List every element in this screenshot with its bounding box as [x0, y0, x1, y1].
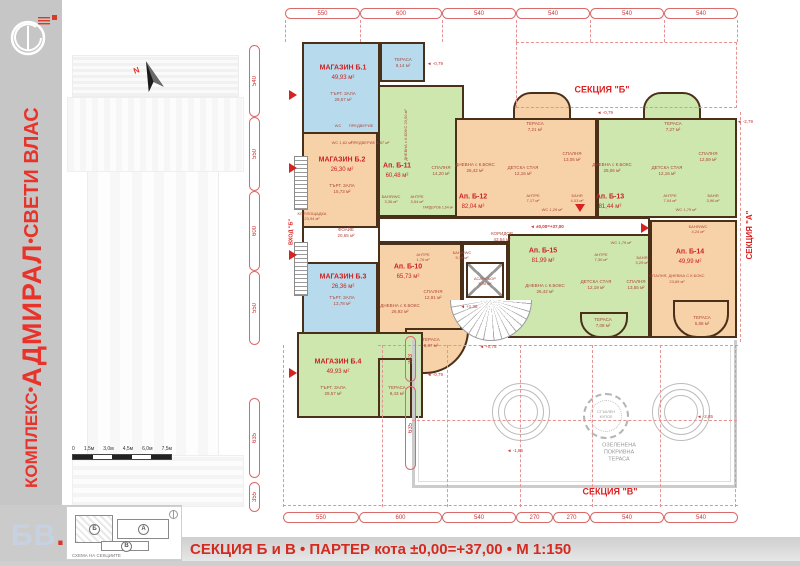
dashed-gridline	[382, 345, 383, 507]
dimension-label: 270	[553, 512, 590, 523]
plan-label: 5,08 м²	[479, 282, 492, 286]
plan-label: ТЪРГ. ЗАЛА	[329, 184, 354, 189]
level-mark: ◄ -2,85	[697, 415, 713, 420]
plan-label: ТЕРАСА	[394, 58, 412, 63]
plan-label: 13,55 м²	[627, 286, 644, 291]
plan-label: 20,65 м²	[337, 234, 354, 239]
level-mark: ◄ -2,79	[737, 120, 753, 125]
dimension-label: 600	[360, 8, 442, 19]
plan-label: 25,06 м²	[603, 169, 620, 174]
plan-label: 4,24 м²	[692, 230, 705, 234]
entrance-marker-icon	[289, 250, 297, 260]
dimension-label: 355	[249, 482, 260, 512]
entrance-marker-icon	[641, 223, 649, 233]
plan-label: 12,91 м²	[424, 296, 441, 301]
dimension-label: 540	[590, 8, 664, 19]
plan-label: 12,16 м²	[658, 172, 675, 177]
dashed-gridline	[447, 345, 448, 507]
key-plan-caption: СХЕМА НА СЕКЦИИТЕ	[72, 553, 121, 558]
plan-label: 7,30 м²	[595, 258, 608, 262]
brand-complex: КОМПЛЕКС	[22, 393, 41, 489]
plan-label: ДЕТСКА СТАЯ	[508, 166, 539, 171]
plan-label: КОРИДОР	[491, 232, 513, 237]
sheet-code-dot: .	[56, 519, 65, 552]
dashed-gridline	[735, 345, 736, 507]
plan-label: ДНЕВНА с К.БОКС	[525, 284, 564, 289]
dashed-gridline	[660, 345, 661, 507]
dashed-gridline	[664, 20, 665, 42]
plan-label: МАГАЗИН Б.4	[315, 359, 362, 366]
plan-label: ДЕТСКА СТАЯ	[652, 166, 683, 171]
scale-label: 4,5м	[123, 446, 133, 452]
plan-label: 26,92 м²	[391, 310, 408, 315]
plan-label: WC 1,79 м²	[611, 241, 632, 245]
plan-label: СЕКЦИЯ "А"	[746, 211, 754, 260]
dimension-label: 550	[285, 8, 360, 19]
plan-label: 3,29 м²	[636, 261, 649, 265]
dimension-label: 540	[442, 512, 516, 523]
plan-label: 49,93 м²	[327, 369, 350, 375]
plan-label: СЕКЦИЯ "Б"	[574, 86, 629, 95]
dashed-gridline	[592, 345, 593, 507]
brand-vertical-text: КОМПЛЕКС•АДМИРАЛ•СВЕТИ ВЛАС	[15, 62, 49, 534]
plan-label: ПРЕДВЕРИЕ 1,87 м²	[351, 141, 390, 145]
plan-label: 8,87 м²	[424, 344, 439, 349]
plan-label: 15,73 м²	[333, 190, 350, 195]
scale-bar-segments	[72, 454, 172, 460]
key-plan-label-v: В	[121, 541, 132, 552]
plan-label: ВХОД "Б"	[289, 219, 295, 245]
plan-label: МАГАЗИН Б.1	[320, 65, 367, 72]
plan-label: СПАЛНЯ	[562, 152, 581, 157]
plan-label: 12,59 м²	[699, 158, 716, 163]
entrance-marker-icon	[575, 204, 585, 212]
plan-label: ДНЕВНА с К.БОКС 23,90 м²	[404, 109, 408, 160]
entrance-marker-icon	[289, 90, 297, 100]
plan-label: ПРЕДВЕРИЕ	[349, 124, 373, 128]
plan-label: ТЕРАСА	[608, 457, 629, 463]
plan-label: ТЪРГ. ЗАЛА	[330, 92, 355, 97]
plan-label: Ап. Б-10	[394, 264, 422, 271]
plan-label: МАГАЗИН Б.3	[320, 274, 367, 281]
plan-label: 5,88 м²	[695, 322, 710, 327]
plan-label: 3,54 м²	[411, 200, 424, 204]
dashed-gridline	[516, 20, 517, 42]
plan-label: 43,54 м²	[493, 238, 510, 243]
dashed-gridline	[283, 345, 284, 507]
plan-label: ТЕРАСА	[693, 316, 711, 321]
brand-city: СВЕТИ ВЛАС	[21, 108, 43, 239]
dimension-label: 635	[405, 386, 416, 470]
scale-label: 6,0м	[142, 446, 152, 452]
title-bar: СЕКЦИЯ Б и В • ПАРТЕР кота ±0,00=+37,00 …	[182, 537, 800, 561]
plan-label: 7,17 м²	[527, 199, 540, 203]
plan-label: ДЕТСКА СТАЯ	[581, 280, 612, 285]
plan-label: Ап. Б-14	[676, 249, 704, 256]
plan-label: 49,93 м²	[332, 75, 355, 81]
plan-label: 7,04 м²	[664, 199, 677, 203]
dashed-gridline	[520, 345, 521, 507]
key-plan-label-a: А	[138, 524, 149, 535]
plan-label: СПАЛНЯ	[626, 280, 645, 285]
level-mark: ◄ +0,75	[479, 345, 496, 350]
plan-label: 49,99 м²	[679, 259, 702, 265]
plan-label: 26,36 м²	[332, 284, 355, 290]
dimension-label: 600	[359, 512, 442, 523]
plan-label: 65,73 м²	[397, 274, 420, 280]
plan-label: ФОАЙЕ	[338, 228, 354, 233]
dashed-gridline	[412, 420, 737, 421]
dimension-label: 550	[283, 512, 359, 523]
plan-label: СЕКЦИЯ "В"	[582, 488, 637, 497]
plan-label: 81,99 м²	[532, 258, 555, 264]
dimension-label: 540	[664, 512, 738, 523]
sketch-column-shaft	[87, 172, 219, 455]
plan-label: 26,42 м²	[536, 290, 553, 295]
plan-label: 3,96 м²	[707, 199, 720, 203]
plan-label: ТЕРАСА	[422, 338, 440, 343]
plan-label: СПАЛНЯ	[423, 290, 442, 295]
plan-label: 26,42 м²	[466, 169, 483, 174]
north-label: N	[132, 65, 141, 76]
scale-label: 3,0м	[103, 446, 113, 452]
plan-label: WC 1,29 м²	[542, 208, 563, 212]
plan-label: 13,05 м²	[563, 158, 580, 163]
plan-label: 1,76 м²	[417, 258, 430, 262]
plan-label: СПАЛНЯ, ДНЕВНА С К.БОКС	[649, 274, 704, 278]
plan-label: 9,14 м²	[396, 64, 411, 69]
dashed-gridline	[360, 20, 361, 42]
dashed-gridline	[740, 112, 741, 342]
plan-label: МАГАЗИН Б.2	[319, 157, 366, 164]
dashed-zone	[516, 42, 737, 108]
plan-label: 7,21 м²	[528, 128, 543, 133]
plan-label: 7,27 м²	[666, 128, 681, 133]
dashed-gridline	[285, 20, 286, 42]
terrace-ring	[664, 395, 698, 429]
plan-label: ТЪРГ. ЗАЛА	[320, 386, 345, 391]
plan-label: Ап. Б-15	[529, 248, 557, 255]
dashed-gridline	[737, 20, 738, 42]
plan-label: ТЕРАСА	[664, 122, 682, 127]
plan-label: 14,20 м²	[432, 172, 449, 177]
plan-label: WC 1,62 м²	[332, 141, 353, 145]
company-logo-icon	[8, 12, 60, 65]
plan-label: 23,69 м²	[669, 280, 684, 284]
dimension-label: 540	[590, 512, 664, 523]
plan-label: WC	[335, 124, 342, 128]
dimension-label: 540	[516, 8, 590, 19]
brand-separator: •	[23, 238, 40, 244]
plan-label: 7,08 м²	[596, 324, 611, 329]
plan-label: ДНЕВНА с К.БОКС	[592, 163, 631, 168]
plan: 5506005405405405405506005402702705405405…	[245, 0, 800, 537]
sketch-frieze	[67, 97, 244, 172]
entrance-marker-icon	[289, 368, 297, 378]
brand-name: АДМИРАЛ	[17, 244, 47, 387]
plan-label: 29,57 м²	[324, 392, 341, 397]
key-plan-compass-icon	[169, 510, 178, 519]
dimension-label: 363	[405, 336, 416, 382]
dimension-label: 550	[249, 271, 260, 345]
sheet-title: СЕКЦИЯ Б и В • ПАРТЕР кота ±0,00=+37,00 …	[182, 541, 571, 558]
brand-separator: •	[23, 387, 40, 393]
plan-label: 5,19 м²	[456, 256, 469, 260]
plan-label: Ап. Б-11	[383, 163, 411, 170]
drawing-sheet: N 0 1,5м 3,0м 4,5м 6,0м 7,5м 55060054054…	[0, 0, 800, 566]
plan-label: 3,36 м²	[385, 200, 398, 204]
level-mark: ◄ -1,85	[507, 449, 523, 454]
plan-label: Ап. Б-12	[459, 194, 487, 201]
scale-label: 7,5м	[162, 446, 172, 452]
plan-label: Ап. Б-13	[596, 194, 624, 201]
plan-label: 9,43 м²	[390, 392, 405, 397]
plan-label: 81,44 м²	[599, 204, 622, 210]
plan-label: ГАРДЕРОБ 1,64 м²	[423, 206, 453, 210]
scale-label: 1,5м	[84, 446, 94, 452]
dimension-label: 540	[249, 45, 260, 117]
plan-label: ПОКРИВНА	[604, 450, 634, 456]
terrace-ring	[504, 395, 538, 429]
plan-label: ТЪРГ. ЗАЛА	[329, 296, 354, 301]
plan-label: 82,04 м²	[462, 204, 485, 210]
plan-label: 29,57 м²	[334, 98, 351, 103]
plan-label: ОЗЕЛЕНЕНА	[602, 443, 636, 449]
dimension-label: 550	[249, 117, 260, 191]
plan-label: WC 1,79 м²	[676, 208, 697, 212]
level-mark: ◄ +1,38	[460, 305, 477, 310]
level-mark: ◄ -0,79	[597, 111, 613, 116]
entrance-marker-icon	[289, 163, 297, 173]
dimension-label: 270	[516, 512, 553, 523]
dimension-label: 540	[664, 8, 738, 19]
plan-label: ТЕРАСА	[388, 386, 406, 391]
plan-label: ТЕРАСА	[526, 122, 544, 127]
plan-label: СПАЛНЯ	[431, 166, 450, 171]
sketch-column-base	[72, 455, 244, 507]
key-plan-label-b: Б	[89, 524, 100, 535]
plan-label: СПАЛНЯ	[698, 152, 717, 157]
sheet-code-prefix: БВ	[11, 519, 56, 552]
plan-label: 4,03 м²	[571, 199, 584, 203]
plan-label: КУПОЛ	[600, 416, 613, 420]
scale-bar: 0 1,5м 3,0м 4,5м 6,0м 7,5м	[72, 446, 172, 460]
plan-label: ДНЕВНА с К.БОКС	[455, 163, 494, 168]
level-mark: ◄ -0,79	[427, 62, 443, 67]
dimension-label: 635	[249, 398, 260, 478]
plan-label: 12,16 м²	[514, 172, 531, 177]
plan-label: 23,94 м²	[304, 217, 319, 221]
key-plan: Б А В СХЕМА НА СЕКЦИИТЕ	[66, 506, 182, 560]
plan-label: ДНЕВНА с К.БОКС	[380, 304, 419, 309]
plan-label: ТЕРАСА	[594, 318, 612, 323]
dimension-label: 600	[249, 191, 260, 271]
plan-label: 26,30 м²	[331, 167, 354, 173]
level-mark: ◄ ±0,00=+37,00	[530, 225, 563, 230]
dimension-label: 540	[442, 8, 516, 19]
dashed-gridline	[442, 20, 443, 42]
plan-label: 13,78 м²	[333, 302, 350, 307]
plan-label: 60,48 м²	[386, 173, 409, 179]
level-mark: ◄ -0,79	[427, 373, 443, 378]
plan-label: 12,19 м²	[587, 286, 604, 291]
scale-label: 0	[72, 446, 75, 452]
dashed-gridline	[283, 505, 738, 506]
dashed-gridline	[590, 20, 591, 42]
bottom-band	[0, 561, 800, 566]
